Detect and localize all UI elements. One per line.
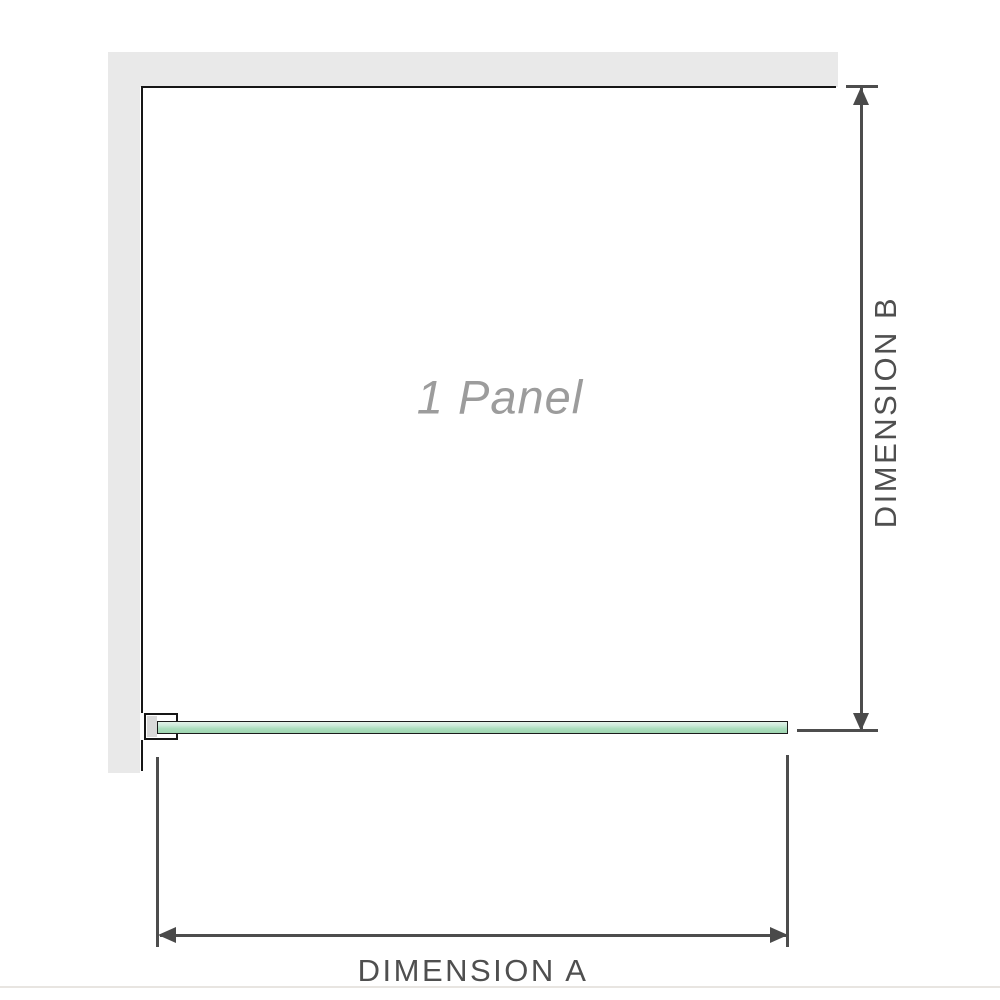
wall-bracket-fill	[147, 716, 157, 737]
glass-panel	[157, 721, 788, 734]
panel-label: 1 Panel	[417, 370, 583, 425]
panel-outline-left-lower	[141, 740, 143, 771]
dimension-b-arrow-down-icon	[853, 713, 869, 731]
wall-left	[108, 52, 140, 773]
dimension-a-left-extension-line	[156, 757, 159, 947]
dimension-a-arrow-left-icon	[158, 927, 176, 943]
panel-outline-top	[141, 86, 836, 88]
wall-top	[108, 52, 838, 87]
dimension-b-arrow-up-icon	[853, 87, 869, 105]
dimension-b-label: DIMENSION B	[868, 296, 904, 528]
dimension-a-label: DIMENSION A	[358, 953, 589, 989]
bottom-divider	[0, 986, 1000, 988]
dimension-diagram: 1 Panel DIMENSION B DIMENSION A	[0, 0, 1000, 1000]
dimension-a-right-extension-line	[786, 755, 789, 947]
panel-outline-left-upper	[141, 86, 143, 713]
dimension-a-arrow-right-icon	[770, 927, 788, 943]
dimension-a-line	[160, 934, 787, 937]
dimension-b-line	[860, 88, 863, 730]
